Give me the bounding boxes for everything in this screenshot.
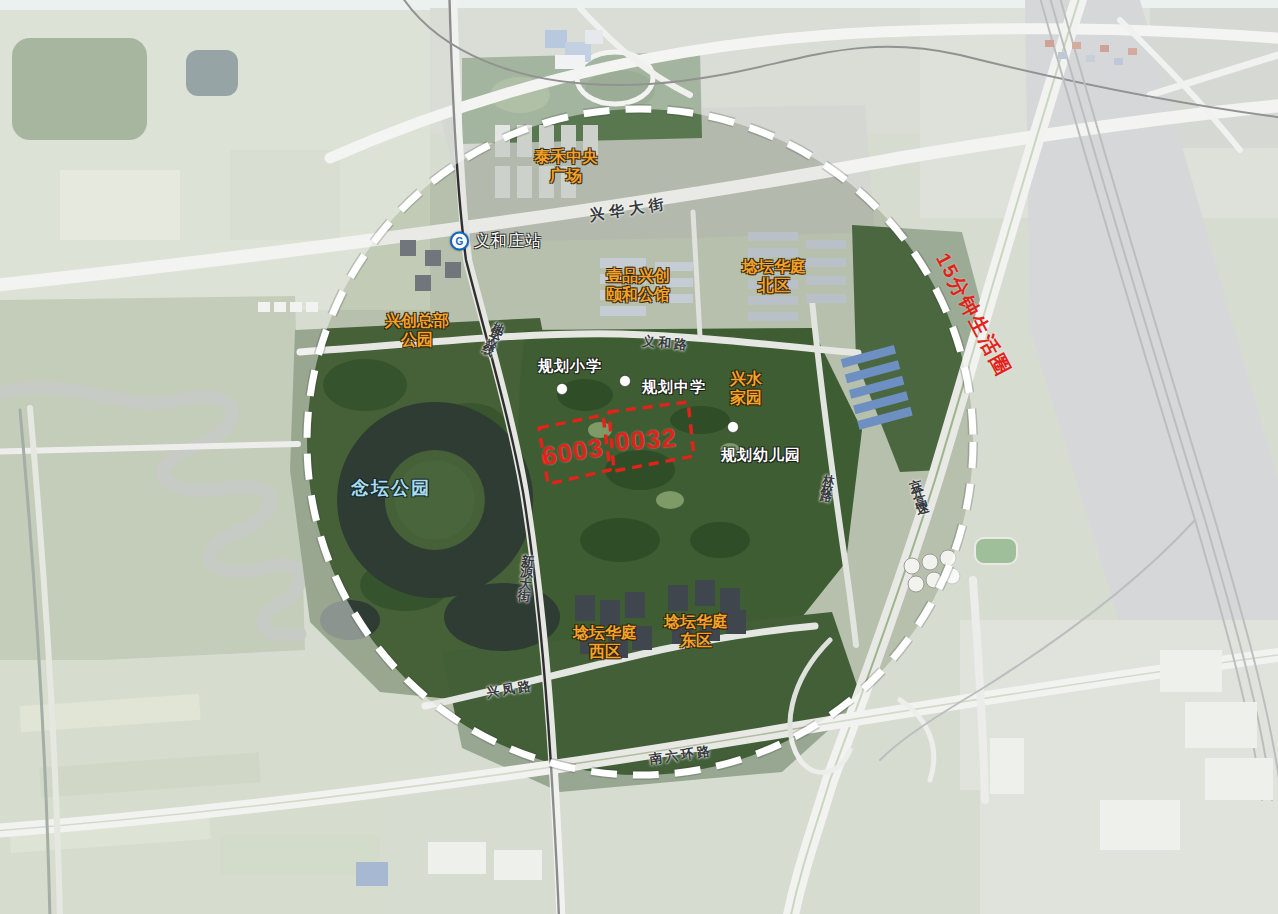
yihezhuang-station: G 义和庄站: [450, 231, 542, 252]
metro-station-icon: G: [450, 232, 469, 251]
planning-map: 泰禾中央 广场 G 义和庄站 壹品兴创 颐和公馆 埝坛华庭 北区 兴创总部 公园…: [0, 0, 1278, 914]
middle-school-dot: [620, 376, 631, 387]
label-yihezhuang-station: 义和庄站: [474, 231, 542, 252]
kindergarten-dot: [728, 422, 739, 433]
satellite-basemap: [0, 0, 1278, 914]
primary-school-dot: [557, 384, 568, 395]
